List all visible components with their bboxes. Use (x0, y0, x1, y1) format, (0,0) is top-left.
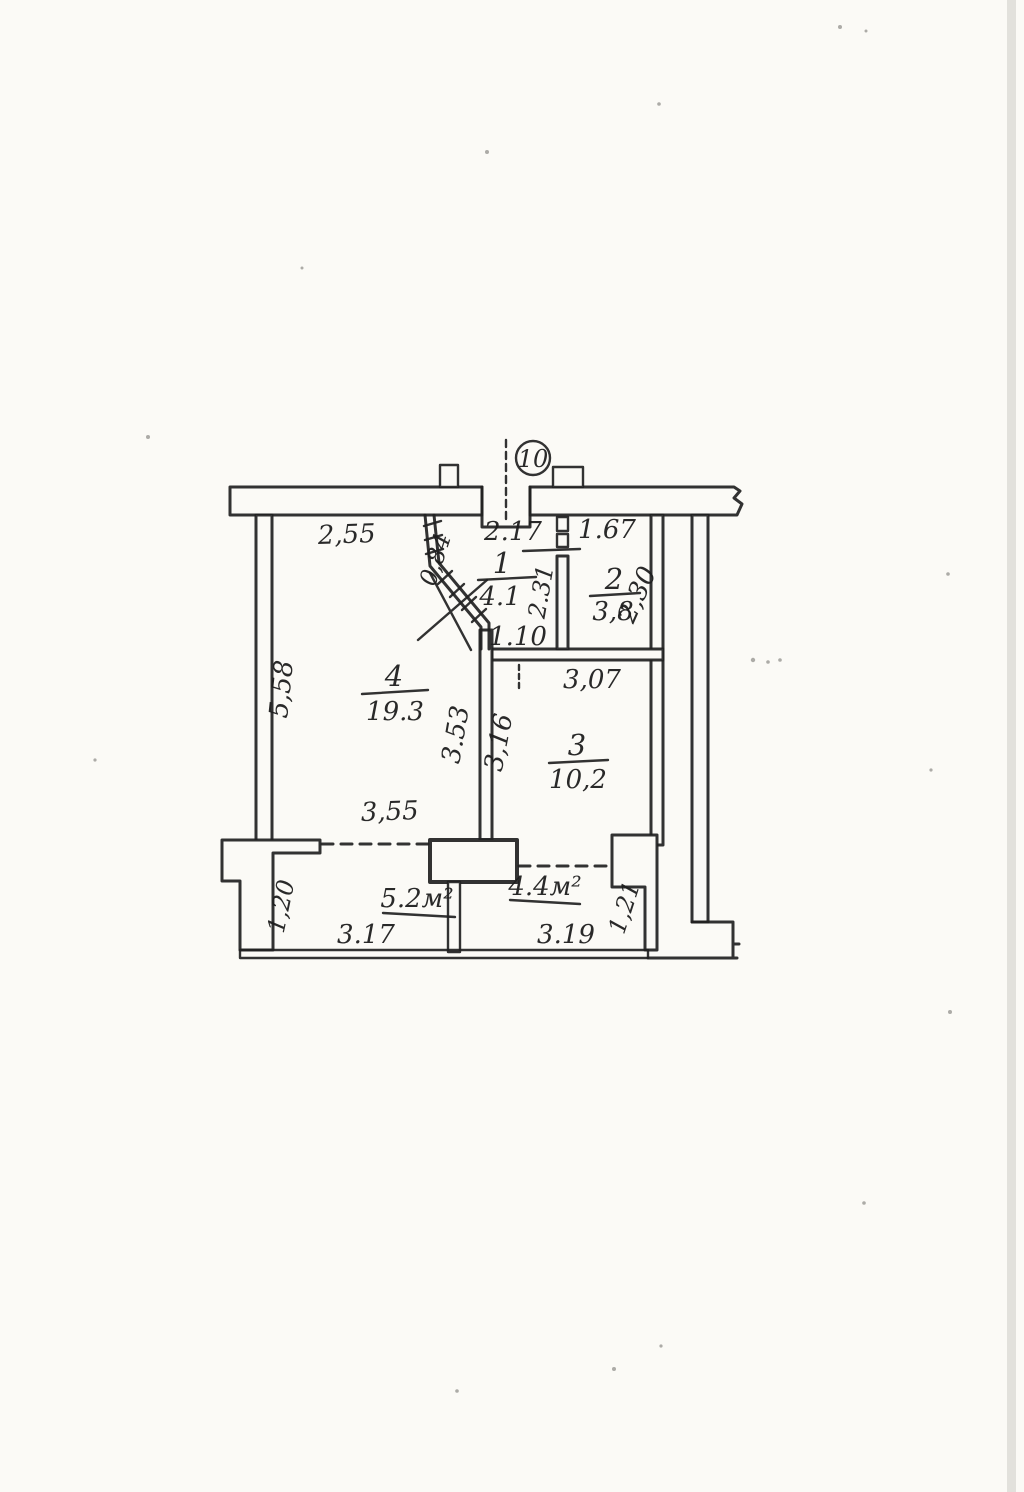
room4-number: 4 (384, 659, 403, 693)
floorplan-drawing: 10 1 4.1 2 3,8 3 10,2 4 19.3 5.2м² 4.4м²… (0, 0, 1024, 1492)
top-wall-pilaster-1 (440, 465, 458, 487)
balcony-right-area: 4.4м² (507, 872, 581, 902)
room1-fraction-line (478, 577, 536, 580)
dim-room4-top-width: 2,55 (316, 519, 376, 551)
dim-balcony-right-width: 3.19 (537, 920, 595, 950)
balcony-center-pier (430, 840, 517, 882)
dim-room4-bottom-width: 3,55 (360, 796, 419, 828)
room3-fraction-line (549, 760, 608, 763)
apartment-number-badge: 10 (516, 441, 550, 475)
room3-area: 10,2 (549, 765, 607, 795)
room1-room2-door-line (523, 549, 580, 551)
top-wall-left (230, 487, 482, 515)
top-wall-right (530, 487, 742, 515)
dim-room2-top-width: 1.67 (578, 515, 636, 545)
room1-area: 4.1 (478, 582, 520, 612)
dim-balcony-right-depth: 1,21 (603, 878, 646, 937)
dim-hall-room2-wall-depth: 2.31 (523, 563, 560, 621)
dim-entry-width: 2.17 (483, 517, 542, 547)
right-wall (692, 515, 708, 922)
dim-room4-left-height: 5,58 (264, 659, 300, 720)
room1-number: 1 (493, 546, 511, 580)
apartment-number: 10 (518, 445, 549, 473)
top-wall-pilaster-2 (553, 467, 583, 487)
room2-number: 2 (604, 562, 623, 596)
dimension-labels: 2,55 2.17 1.67 0,84 2.31 2,30 1.10 3,07 … (262, 515, 663, 950)
dim-room4-right-height: 3.53 (436, 704, 476, 766)
scan-specks (93, 0, 1016, 1492)
dim-balcony-left-width: 3.17 (337, 920, 395, 950)
dim-hall-bottom-width: 1.10 (489, 622, 547, 652)
door-leaf-block-2 (557, 534, 568, 547)
balcony-railing (240, 950, 648, 958)
scanned-floorplan-page: 10 1 4.1 2 3,8 3 10,2 4 19.3 5.2м² 4.4м²… (0, 0, 1024, 1492)
room3-number: 3 (568, 728, 586, 762)
room2-room3-right-wall (651, 515, 663, 845)
dim-room3-top-width: 3,07 (563, 665, 621, 695)
door-leaf-block-1 (557, 517, 568, 531)
room4-area: 19.3 (366, 697, 424, 727)
scanner-edge-shade (1007, 0, 1016, 1492)
balcony-left-area: 5.2м² (380, 884, 453, 914)
right-wall-step (648, 922, 739, 958)
dim-hall-diagonal-offset: 0,84 (414, 530, 457, 589)
